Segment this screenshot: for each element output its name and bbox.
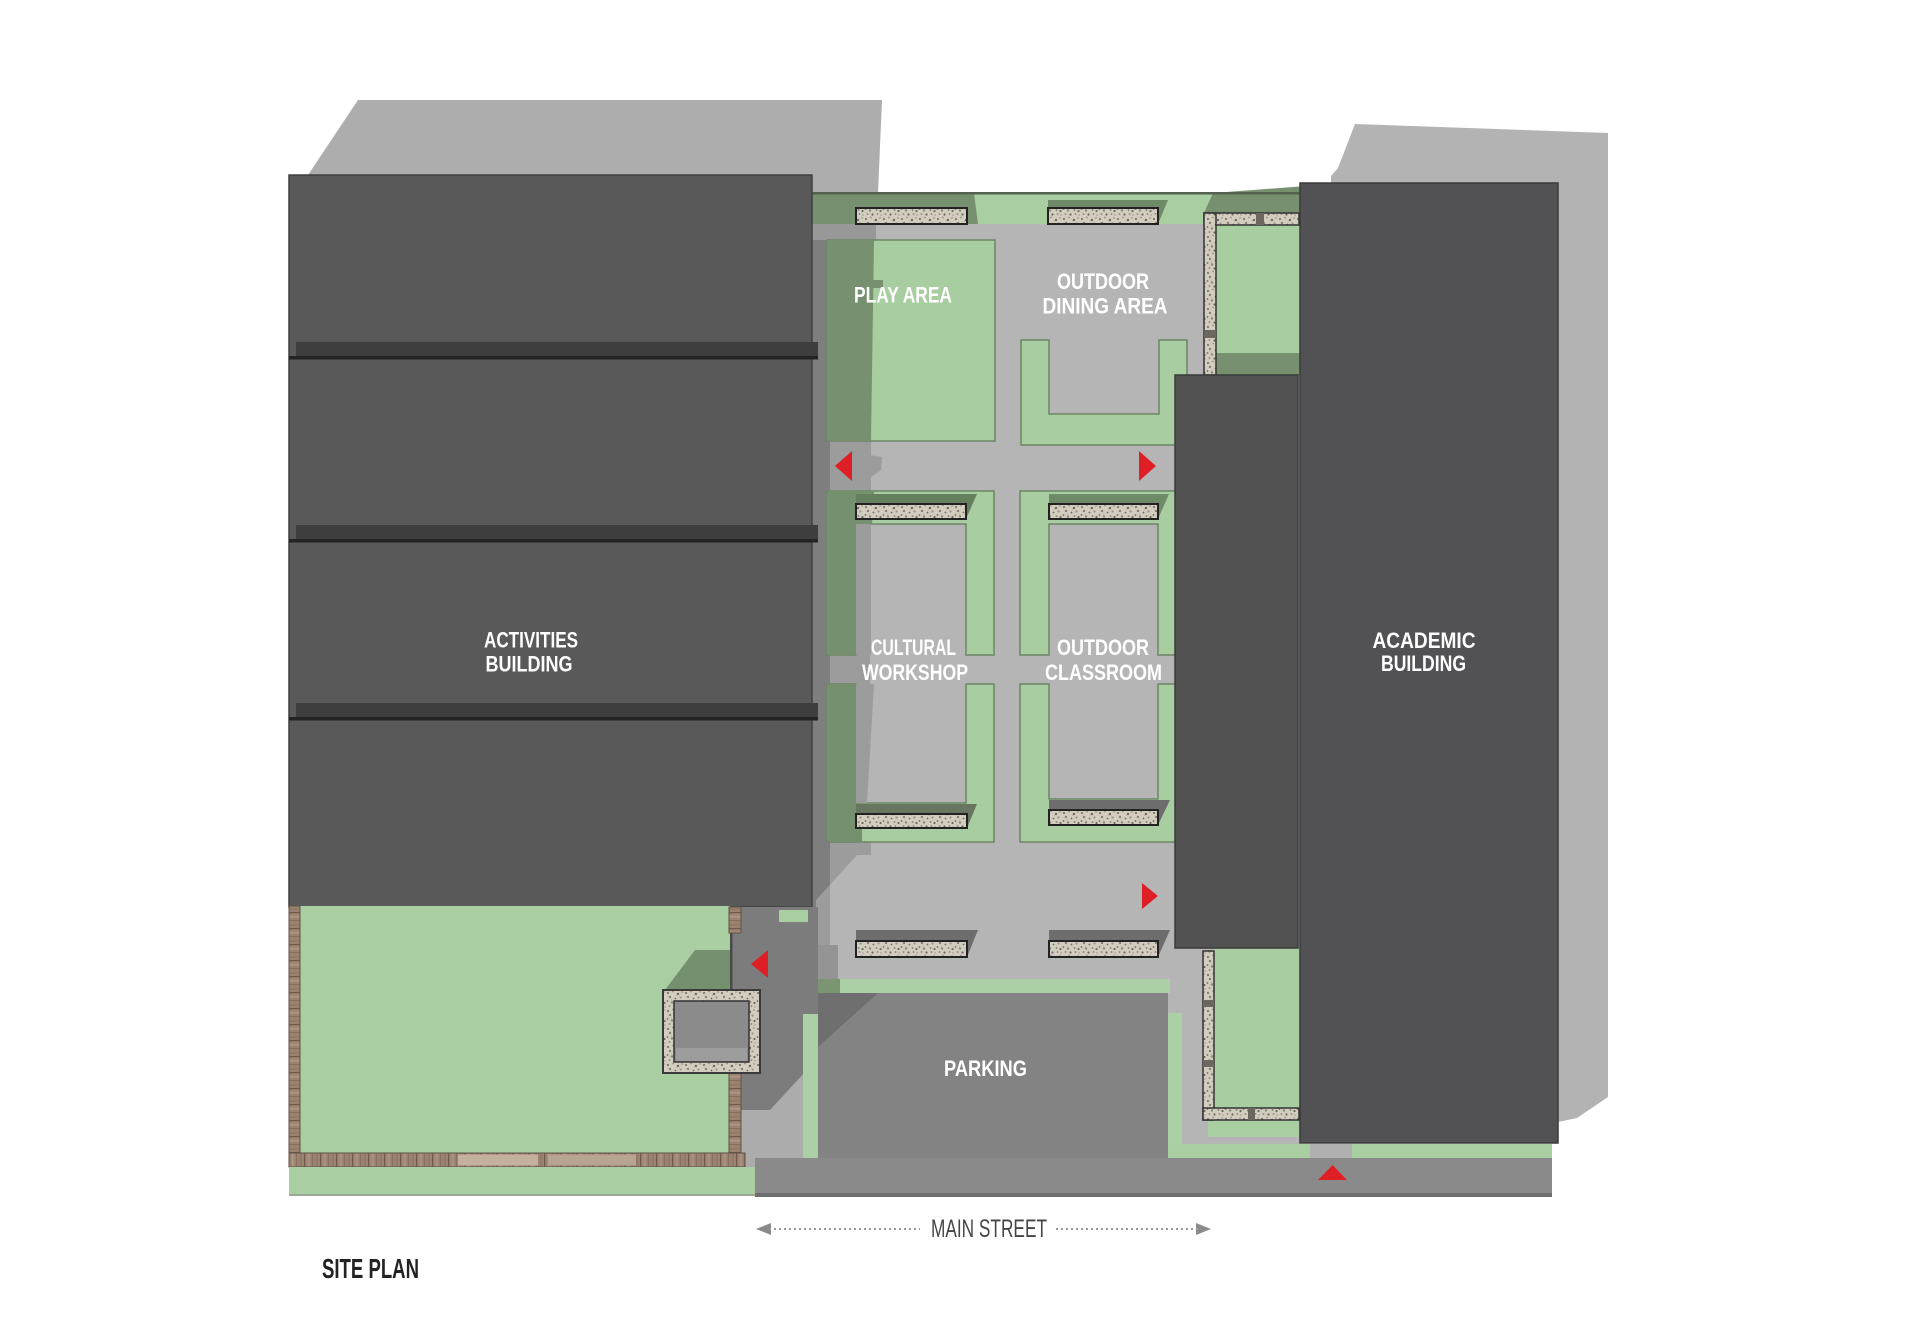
- svg-text:PARKING: PARKING: [944, 1056, 1027, 1081]
- svg-text:ACTIVITIES: ACTIVITIES: [484, 628, 578, 653]
- svg-text:PLAY AREA: PLAY AREA: [854, 283, 952, 308]
- svg-text:CLASSROOM: CLASSROOM: [1045, 660, 1162, 685]
- svg-text:SITE PLAN: SITE PLAN: [322, 1253, 419, 1284]
- svg-text:BUILDING: BUILDING: [1381, 651, 1466, 676]
- svg-text:ACADEMIC: ACADEMIC: [1373, 628, 1476, 653]
- svg-text:OUTDOOR: OUTDOOR: [1057, 635, 1149, 660]
- svg-text:MAIN STREET: MAIN STREET: [931, 1215, 1047, 1243]
- svg-text:DINING AREA: DINING AREA: [1043, 294, 1168, 319]
- svg-text:WORKSHOP: WORKSHOP: [862, 660, 968, 685]
- svg-text:BUILDING: BUILDING: [486, 652, 573, 677]
- svg-text:OUTDOOR: OUTDOOR: [1057, 269, 1149, 294]
- svg-text:CULTURAL: CULTURAL: [871, 635, 956, 660]
